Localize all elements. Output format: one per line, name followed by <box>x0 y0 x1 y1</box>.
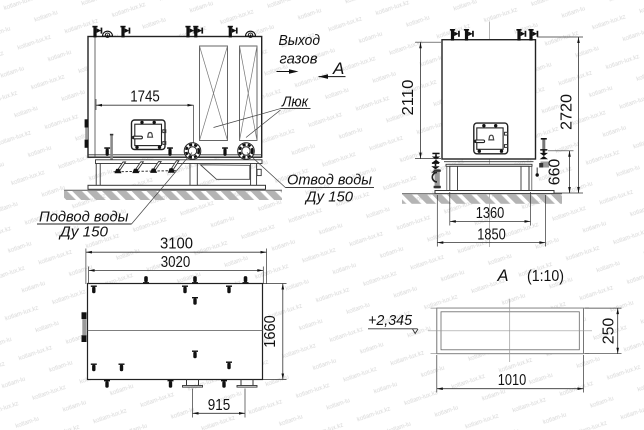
svg-text:915: 915 <box>208 397 231 414</box>
svg-text:1010: 1010 <box>498 372 527 389</box>
svg-text:1745: 1745 <box>130 89 160 106</box>
svg-text:Люк: Люк <box>281 94 309 111</box>
svg-text:2110: 2110 <box>400 79 417 115</box>
svg-text:1850: 1850 <box>477 227 506 244</box>
svg-text:250: 250 <box>601 317 618 344</box>
svg-text:Ду 150: Ду 150 <box>304 189 354 206</box>
svg-text:Ду 150: Ду 150 <box>58 224 109 241</box>
svg-text:2720: 2720 <box>559 94 576 130</box>
svg-text:1360: 1360 <box>476 205 505 222</box>
svg-text:А: А <box>332 59 344 78</box>
svg-text:3100: 3100 <box>160 236 193 253</box>
svg-text:Выход: Выход <box>279 33 321 49</box>
svg-text:3020: 3020 <box>161 254 191 271</box>
svg-text:(1:10): (1:10) <box>527 268 564 285</box>
svg-text:+2,345: +2,345 <box>368 312 413 329</box>
svg-text:1660: 1660 <box>262 315 279 348</box>
svg-text:А: А <box>497 267 509 285</box>
svg-text:Отвод воды: Отвод воды <box>287 172 372 189</box>
svg-text:660: 660 <box>547 158 564 185</box>
svg-text:газов: газов <box>280 52 318 68</box>
